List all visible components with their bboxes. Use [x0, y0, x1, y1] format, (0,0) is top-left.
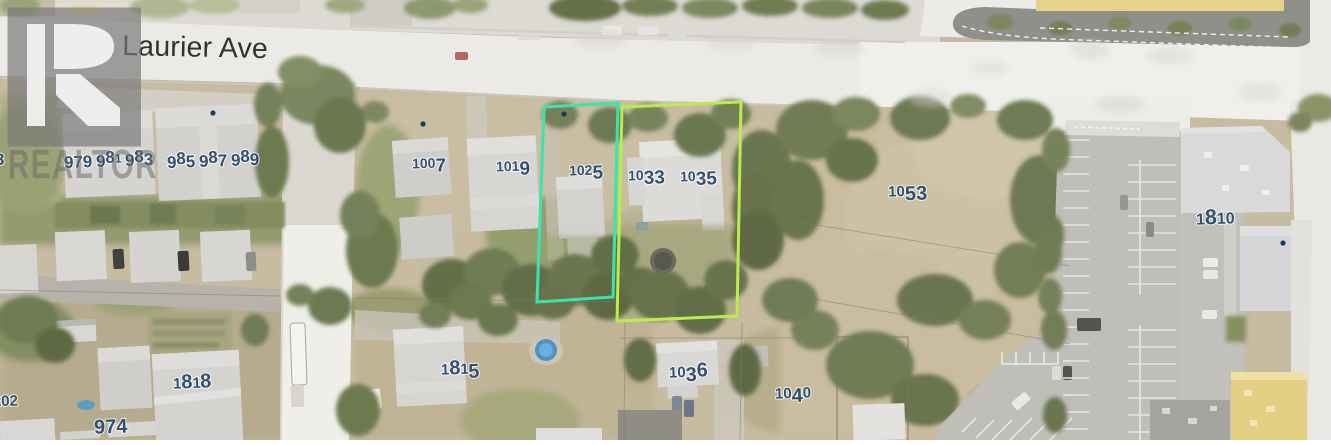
svg-text:202: 202	[0, 392, 18, 410]
svg-text:Laurier Ave: Laurier Ave	[122, 30, 268, 65]
svg-text:REALTOR: REALTOR	[8, 141, 158, 187]
svg-text:974: 974	[94, 416, 129, 439]
svg-text:3: 3	[0, 150, 4, 169]
